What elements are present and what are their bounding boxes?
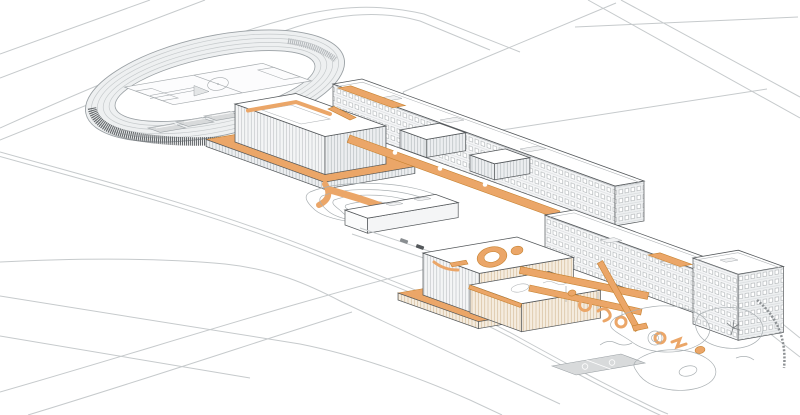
- vehicle: [416, 244, 425, 250]
- campus-axonometric-drawing: [0, 0, 800, 415]
- corner-tower: [693, 250, 783, 340]
- basketball-court: [552, 354, 645, 375]
- illustration-canvas: [0, 0, 800, 415]
